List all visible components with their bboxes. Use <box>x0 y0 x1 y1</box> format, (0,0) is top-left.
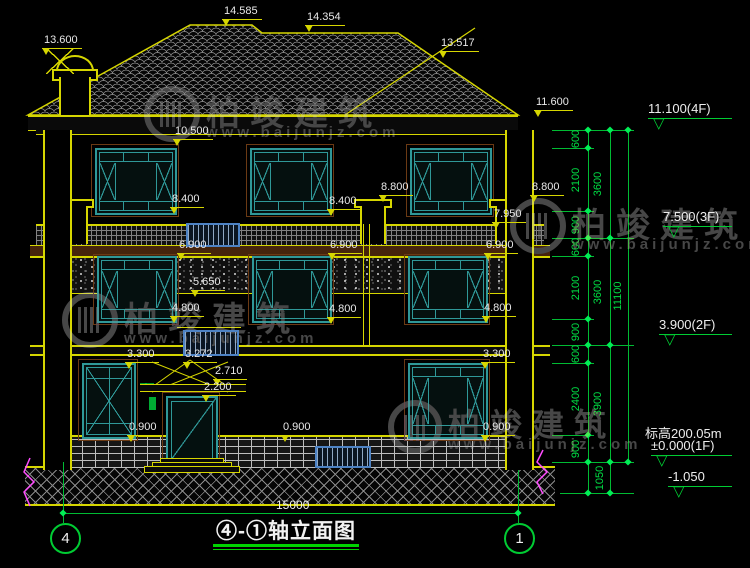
elevation-label: 8.400 <box>327 195 361 210</box>
watermark-logo-icon <box>388 400 442 454</box>
elevation-label: 4.800 <box>170 302 204 317</box>
chimney-body <box>59 77 91 115</box>
elevation-label: 2.200 <box>202 381 236 396</box>
watermark: 柏竣建筑 www.baijunjz.com <box>510 196 750 258</box>
elevation-label: 8.400 <box>170 193 204 208</box>
entrance-door <box>166 396 218 466</box>
elevation-drawing-canvas: 13.600 14.585 14.354 13.517 11.600 10.50… <box>0 0 750 568</box>
elevation-label: 8.800 <box>379 181 413 196</box>
window-3f-right <box>410 148 492 215</box>
downspout <box>363 224 370 345</box>
elevation-label: 11.600 <box>534 96 573 111</box>
elevation-label: 10.500 <box>173 125 213 140</box>
watermark-logo-icon <box>62 292 118 348</box>
dim-value: 3600 <box>592 172 604 196</box>
elevation-label: 4.800 <box>327 303 361 318</box>
watermark-logo-icon <box>510 198 566 254</box>
floor-marker-2f: 3.900(2F) <box>659 317 732 335</box>
drawing-title: ④-①轴立面图 <box>216 515 356 545</box>
floor-marker-4f: 11.100(4F) <box>648 101 732 119</box>
title-underline-thin <box>213 549 359 550</box>
elevation-label: 13.600 <box>42 34 82 49</box>
elevation-label: 6.900 <box>177 239 211 254</box>
watermark-site: www.baijunjz.com <box>124 330 317 347</box>
floor-marker-1f: ±0.000(1F) <box>651 438 732 456</box>
elevation-label: 7.950 <box>492 208 526 223</box>
dim-extension-line <box>552 130 634 131</box>
elevation-label: 6.900 <box>328 239 362 254</box>
ground-marker: -1.050 <box>668 469 732 487</box>
elevation-label: 3.300 <box>481 348 515 363</box>
entry-steps <box>144 458 238 471</box>
dim-value: 11100 <box>612 282 624 311</box>
louver-vent <box>315 446 371 468</box>
window-3f-center <box>250 148 332 215</box>
dim-extension-line <box>552 345 634 346</box>
overall-dim-line <box>63 513 519 514</box>
dim-value: 3600 <box>592 280 604 304</box>
dim-value: 2100 <box>570 276 582 300</box>
dim-extension-line <box>560 493 634 494</box>
dim-value: 600 <box>570 345 582 363</box>
watermark: 柏竣建筑 www.baijunjz.com <box>388 398 668 458</box>
elevation-label: 13.517 <box>439 37 479 52</box>
elevation-label: 0.900 <box>127 421 161 436</box>
elevation-label: 6.900 <box>484 239 518 254</box>
axis-bubble-4: 4 <box>50 523 81 554</box>
dim-value: 900 <box>570 323 582 341</box>
leader-cross <box>46 48 74 74</box>
dim-value: 2100 <box>570 168 582 192</box>
watermark-site: www.baijunjz.com <box>448 436 641 453</box>
elevation-label: 2.710 <box>213 365 247 380</box>
elevation-label: 0.900 <box>281 421 315 436</box>
title-underline-thick <box>213 544 359 547</box>
floor-marker-3f: 7.500(3F) <box>663 209 732 227</box>
watermark-site: www.baijunjz.com <box>206 124 399 141</box>
watermark-site: www.baijunjz.com <box>572 236 750 253</box>
elevation-label: 5.650 <box>191 276 225 291</box>
elevation-label: 3.300 <box>125 348 159 363</box>
overall-width-dim: 15000 <box>276 498 309 512</box>
watermark: 柏竣建筑 www.baijunjz.com <box>62 290 362 352</box>
elevation-label: 4.800 <box>482 302 516 317</box>
dim-extension-line <box>552 462 634 463</box>
elevation-label: 8.800 <box>530 181 564 196</box>
elevation-label: 3.272 <box>183 348 217 363</box>
dim-value: 600 <box>570 130 582 148</box>
elevation-label: 0.900 <box>481 421 515 436</box>
elevation-label: 14.354 <box>305 11 345 26</box>
window-2f-right <box>408 256 488 323</box>
window-3f-left <box>95 148 177 215</box>
canopy-tile-band <box>36 224 544 247</box>
axis-bubble-1: 1 <box>504 523 535 554</box>
dim-value: 1050 <box>594 466 606 490</box>
elevation-label: 14.585 <box>222 5 262 20</box>
